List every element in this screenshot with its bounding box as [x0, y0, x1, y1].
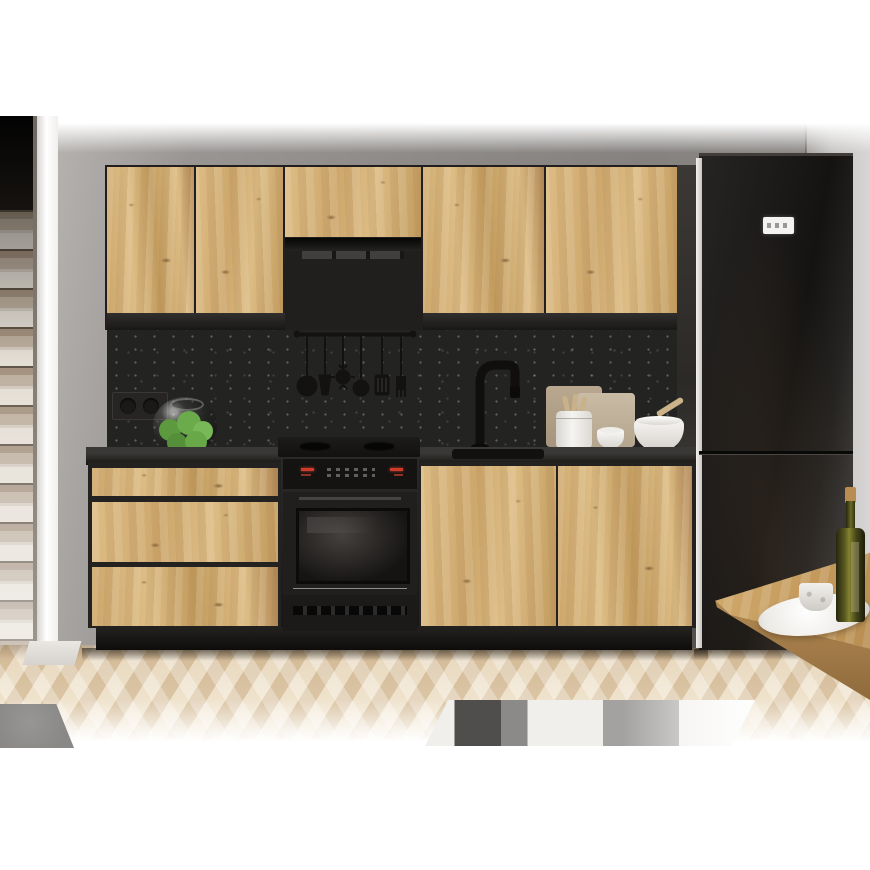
upper-door-1: [107, 167, 194, 313]
extractor-hood: [285, 238, 421, 251]
utensil-rail-icon: [293, 329, 417, 407]
hood-filter-strip: [302, 251, 404, 259]
sink: [452, 449, 544, 459]
oven-panel-icons-row1: [327, 468, 375, 471]
fridge-display-icons: [767, 223, 791, 228]
oven-panel-icons-row2: [327, 474, 375, 477]
upper-cabinet-underside-right: [423, 313, 677, 330]
baseboard: [23, 641, 82, 665]
upper-door-5: [546, 167, 677, 313]
staircase-steps: [0, 210, 36, 646]
oven-trim-line: [293, 588, 407, 589]
oven-control-panel: [283, 459, 417, 489]
olive-oil-bottle: [836, 487, 865, 622]
fridge-door-split-highlight: [699, 454, 853, 455]
kitchen-product-photo: [0, 0, 870, 870]
oven-led-clock: [301, 468, 314, 471]
gas-hob: [278, 437, 420, 457]
drawer-2: [92, 502, 278, 562]
striped-rug: [425, 700, 755, 746]
marble-cup: [799, 583, 833, 611]
drawer-3: [92, 567, 278, 626]
fridge-left-edge: [696, 158, 702, 648]
oven-storage-drawer: [283, 601, 417, 631]
glass-bowl-of-apples: [153, 397, 217, 454]
base-door-2: [558, 466, 692, 626]
oven-led-dim-right: [394, 474, 403, 476]
ceiling-light-fade: [55, 123, 870, 153]
upper-cabinet-underside-left: [107, 313, 285, 330]
oven-door: [283, 492, 417, 595]
burner-left: [300, 443, 330, 450]
bottle-label: [851, 542, 859, 612]
white-wall-column: [37, 116, 58, 664]
bottle-neck: [846, 501, 855, 531]
upper-door-3-short: [285, 167, 421, 237]
oven-led-dim-left: [301, 474, 311, 476]
base-door-1: [421, 466, 556, 626]
upper-door-4: [423, 167, 544, 313]
drawer-1: [92, 468, 278, 496]
burner-right: [364, 443, 394, 450]
bowl-rim: [170, 398, 204, 411]
utensil-canister: [556, 411, 592, 448]
oven-vent-slats: [293, 606, 407, 615]
fridge-display: [763, 217, 794, 234]
oven-handle: [299, 497, 401, 500]
oven-window: [296, 508, 410, 584]
oven-led-temp: [390, 468, 403, 471]
stairwell-dark-opening: [0, 116, 36, 212]
upper-door-2: [196, 167, 283, 313]
fridge-top-edge: [699, 153, 853, 156]
faucet-icon: [468, 352, 526, 450]
